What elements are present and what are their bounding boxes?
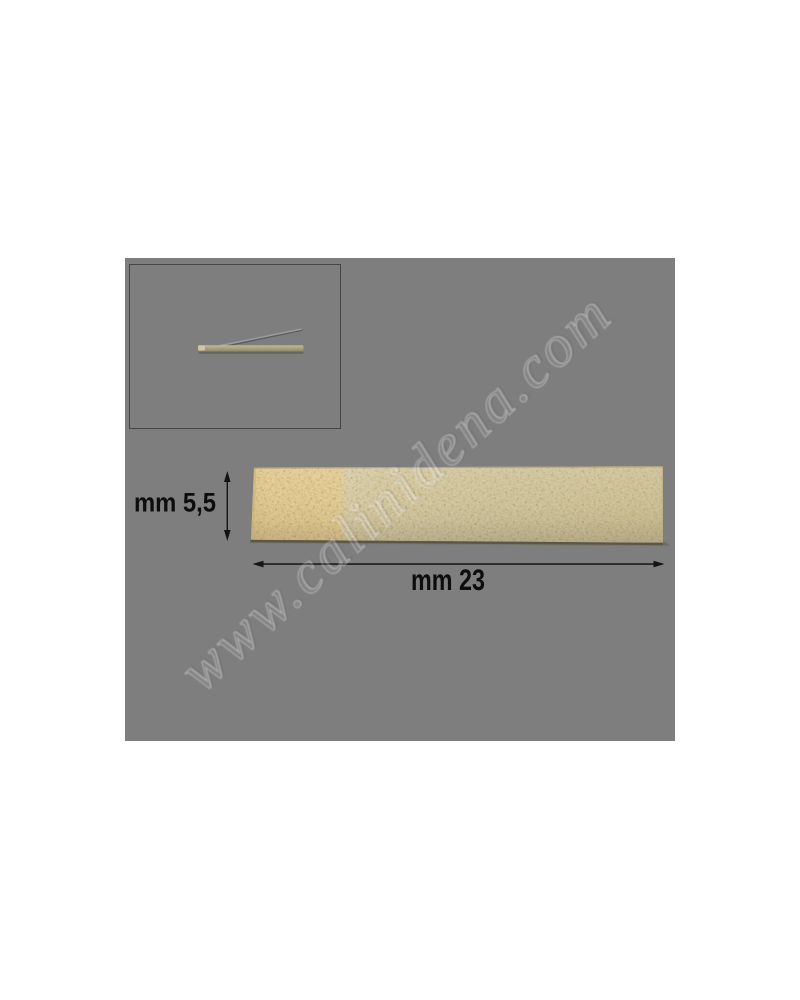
- svg-text:mm 5,5: mm 5,5: [134, 488, 216, 518]
- svg-text:mm 23: mm 23: [411, 564, 485, 597]
